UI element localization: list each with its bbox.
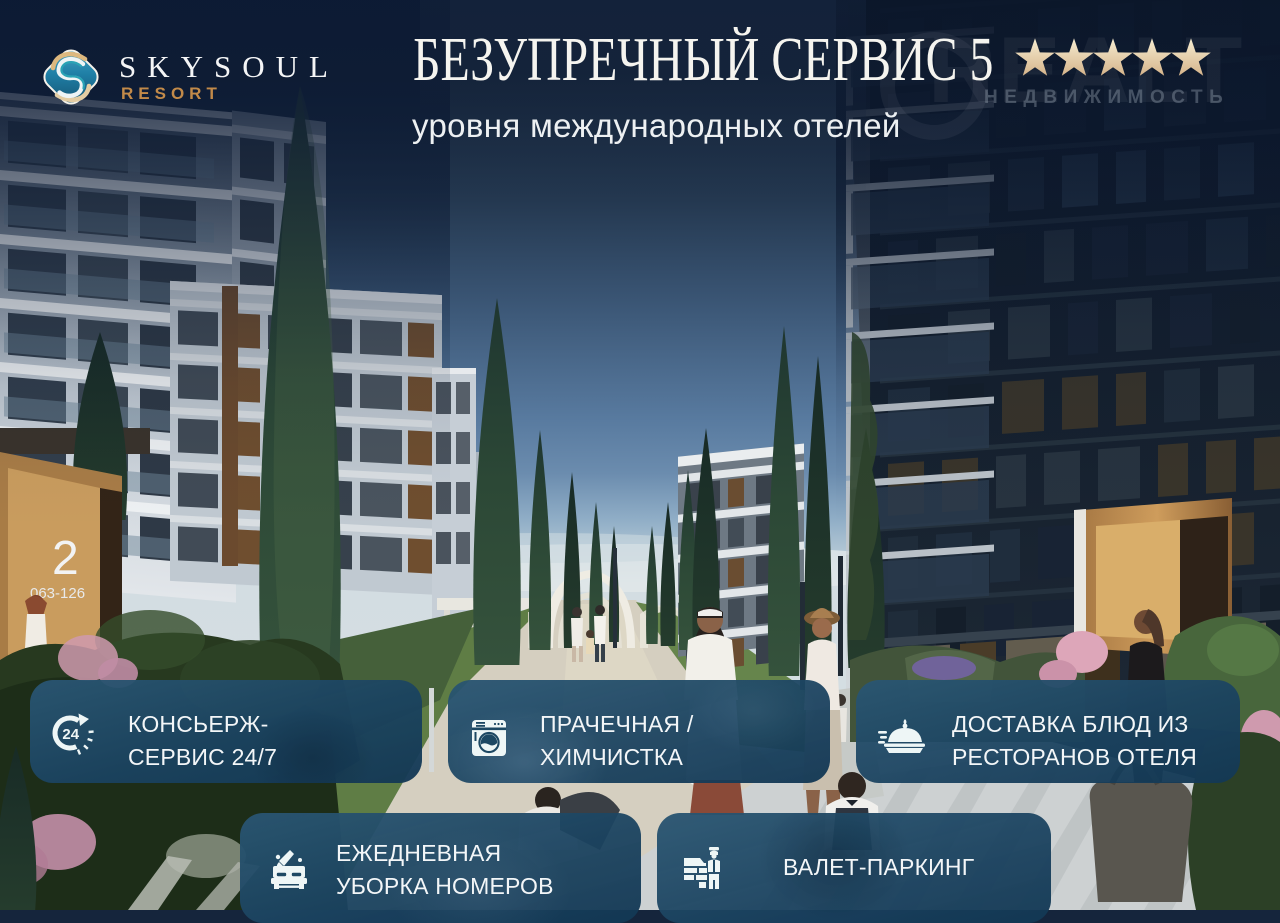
svg-text:24: 24: [62, 726, 79, 743]
